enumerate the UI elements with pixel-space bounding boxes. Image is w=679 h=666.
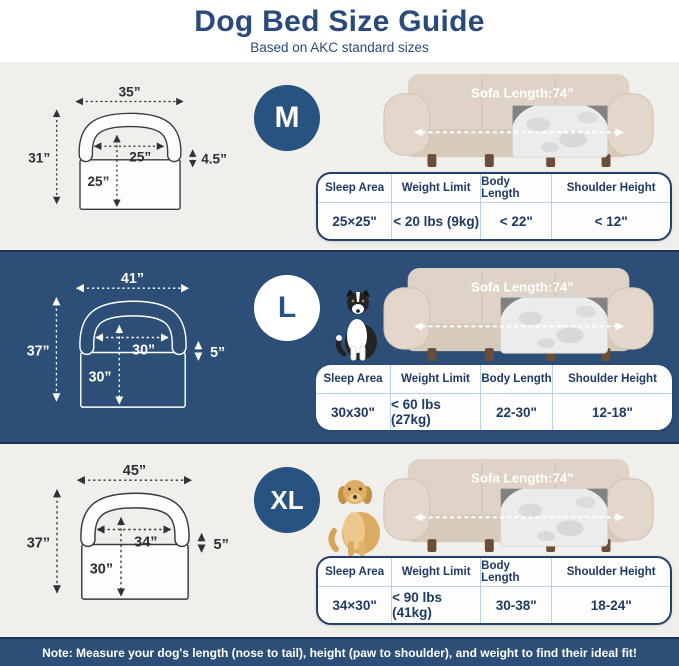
shoulder-height-value: < 12": [552, 203, 670, 239]
body-length-header: Body Length: [481, 365, 553, 394]
page-subtitle: Based on AKC standard sizes: [0, 40, 679, 55]
header: Dog Bed Size Guide Based on AKC standard…: [0, 0, 679, 62]
bed-dimension-diagram-m: 35” 31” 25” 25” 4.5”: [25, 85, 237, 221]
size-table-xl: Sleep Area Weight Limit Body Length Shou…: [316, 556, 672, 625]
sofa-length-label: Sofa Length:74”: [471, 86, 574, 101]
overall-height-label: 37”: [27, 343, 50, 359]
sleep-area-value: 25×25": [318, 203, 392, 239]
overall-width-label: 41”: [121, 271, 144, 287]
sleep-width-label: 30”: [132, 342, 155, 358]
shoulder-height-header: Shoulder Height: [552, 558, 670, 587]
sofa-length-label: Sofa Length:74”: [471, 471, 574, 486]
shoulder-height-value: 18-24": [552, 587, 670, 623]
size-letter: XL: [270, 485, 303, 516]
bed-bolster-fill: [88, 501, 182, 540]
page-title: Dog Bed Size Guide: [0, 5, 679, 39]
sofa-illustration: Sofa Length:74”: [380, 264, 657, 363]
sleep-area-header: Sleep Area: [318, 558, 392, 587]
sleep-area-header: Sleep Area: [318, 174, 392, 203]
shoulder-height-header: Shoulder Height: [552, 174, 670, 203]
size-letter: M: [275, 101, 300, 135]
sleep-depth-label: 25”: [87, 174, 109, 189]
body-length-value: 22-30": [481, 394, 553, 430]
body-length-value: 30-38": [481, 587, 552, 623]
sofa-illustration: Sofa Length:74”: [380, 455, 657, 554]
size-badge-xl: XL: [254, 467, 320, 533]
overall-width-label: 45”: [123, 463, 146, 479]
size-badge-m: M: [254, 85, 320, 151]
size-section-xl: 45” 37” 34” 30” 5” XL: [0, 444, 679, 637]
weight-limit-value: < 20 lbs (9kg): [392, 203, 481, 239]
overall-height-label: 37”: [27, 535, 50, 551]
bolster-height-label: 4.5”: [201, 152, 227, 167]
body-length-header: Body Length: [481, 174, 552, 203]
note-bar: Note: Measure your dog's length (nose to…: [0, 637, 679, 666]
sleep-width-label: 34”: [134, 534, 157, 550]
weight-limit-value: < 60 lbs (27kg): [391, 394, 481, 430]
size-table-l: Sleep Area Weight Limit Body Length Shou…: [316, 365, 672, 430]
sleep-width-label: 25”: [129, 150, 151, 165]
shoulder-height-header: Shoulder Height: [553, 365, 672, 394]
sofa-arm-right: [608, 94, 654, 155]
bolster-height-label: 5”: [210, 344, 225, 360]
size-badge-l: L: [254, 275, 320, 341]
weight-limit-header: Weight Limit: [392, 174, 481, 203]
sofa-illustration: Sofa Length:74”: [380, 70, 657, 169]
border-collie-dog-icon: [334, 290, 386, 362]
dog-bed-cover-on-sofa: [501, 298, 608, 353]
size-letter: L: [278, 291, 296, 325]
overall-width-label: 35”: [119, 85, 141, 100]
dog-bed-size-guide: Dog Bed Size Guide Based on AKC standard…: [0, 0, 679, 666]
sleep-area-value: 30x30": [316, 394, 391, 430]
size-section-m: 35” 31” 25” 25” 4.5” M: [0, 62, 679, 250]
body-length-value: < 22": [481, 203, 552, 239]
bolster-height-label: 5”: [214, 537, 229, 553]
sleep-depth-label: 30”: [90, 561, 113, 577]
overall-height-label: 31”: [28, 151, 50, 166]
weight-limit-value: < 90 lbs (41kg): [392, 587, 481, 623]
size-section-l: 41” 37” 30” 30” 5” L: [0, 250, 679, 444]
weight-limit-header: Weight Limit: [392, 558, 481, 587]
weight-limit-header: Weight Limit: [391, 365, 481, 394]
body-length-header: Body Length: [481, 558, 552, 587]
size-table-m: Sleep Area Weight Limit Body Length Shou…: [316, 172, 672, 241]
sleep-area-header: Sleep Area: [316, 365, 391, 394]
sleep-depth-label: 30”: [89, 369, 112, 385]
bed-dimension-diagram-l: 41” 37” 30” 30” 5”: [25, 270, 243, 420]
sofa-length-label: Sofa Length:74”: [471, 280, 574, 295]
note-text: Note: Measure your dog's length (nose to…: [42, 646, 637, 660]
shoulder-height-value: 12-18": [553, 394, 672, 430]
bed-dimension-diagram-xl: 45” 37” 34” 30” 5”: [25, 462, 247, 612]
sleep-area-value: 34×30": [318, 587, 392, 623]
sofa-arm-left: [384, 94, 430, 155]
